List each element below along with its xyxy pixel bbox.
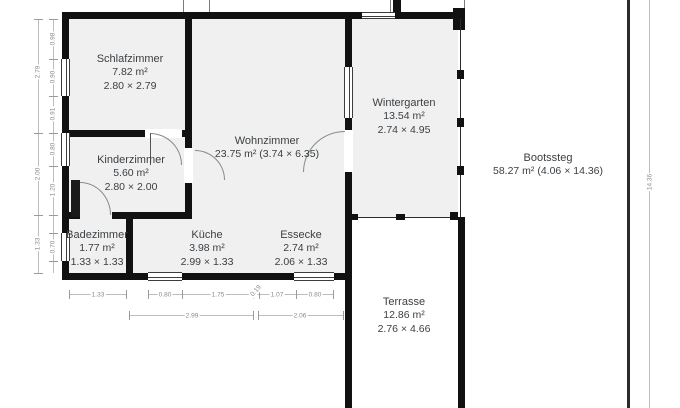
wall-schlaf-wohn bbox=[185, 12, 192, 137]
dimension-label: 1.07 bbox=[270, 291, 285, 298]
dimension-label: 1.33 bbox=[34, 237, 41, 252]
room-label-terrasse: Terrasse 12.86 m² 2.76 × 4.66 bbox=[378, 295, 431, 337]
dimension-tick bbox=[34, 273, 43, 274]
wall-bootssteg-right bbox=[627, 0, 630, 408]
dimension-label: 2.99 bbox=[185, 312, 200, 319]
dimension-tick bbox=[34, 215, 43, 216]
window bbox=[61, 59, 70, 96]
dimension-tick bbox=[129, 311, 130, 320]
room-size: 2.76 × 4.66 bbox=[378, 323, 431, 337]
dimension-tick bbox=[49, 96, 58, 97]
glass-post bbox=[457, 70, 464, 79]
room-size: 2.80 × 2.79 bbox=[97, 80, 164, 94]
dimension-line bbox=[649, 0, 650, 408]
window bbox=[148, 272, 182, 281]
room-label-badezimmer: Badezimmer 1.77 m² 1.33 × 1.33 bbox=[66, 228, 128, 270]
dimension-tick bbox=[34, 19, 43, 20]
dimension-tick bbox=[69, 290, 70, 299]
floor-plan-canvas: Schlafzimmer 7.82 m² 2.80 × 2.79 Kinderz… bbox=[0, 0, 680, 408]
dimension-label: 1.75 bbox=[211, 291, 226, 298]
dimension-label: 0.80 bbox=[49, 142, 56, 157]
dimension-label: 0.98 bbox=[49, 32, 56, 47]
dimension-line bbox=[38, 19, 39, 273]
glass-post bbox=[457, 118, 464, 127]
dimension-tick bbox=[258, 311, 259, 320]
dimension-label: 0.80 bbox=[308, 291, 323, 298]
room-name: Terrasse bbox=[378, 295, 431, 309]
dimension-tick bbox=[49, 59, 58, 60]
room-size: 2.80 × 2.00 bbox=[97, 181, 165, 195]
dimension-label: 0.91 bbox=[49, 107, 56, 122]
room-label-schlafzimmer: Schlafzimmer 7.82 m² 2.80 × 2.79 bbox=[97, 52, 164, 94]
dimension-tick bbox=[49, 133, 58, 134]
dimension-tick bbox=[148, 290, 149, 299]
dimension-tick bbox=[49, 19, 58, 20]
window-wintergarten bbox=[344, 67, 353, 118]
room-size: 2.99 × 1.33 bbox=[181, 256, 234, 270]
room-label-essecke: Essecke 2.74 m² 2.06 × 1.33 bbox=[275, 228, 328, 270]
door-opening bbox=[344, 130, 353, 172]
window bbox=[362, 12, 395, 19]
dimension-label: 0.19 bbox=[248, 283, 263, 299]
room-area: 2.74 m² bbox=[275, 243, 328, 257]
dimension-label: 1.33 bbox=[91, 291, 106, 298]
glass-post bbox=[450, 212, 458, 220]
room-name: Wintergarten bbox=[373, 96, 436, 110]
dimension-tick bbox=[34, 133, 43, 134]
room-label-kueche: Küche 3.98 m² 2.99 × 1.33 bbox=[181, 228, 234, 270]
dimension-label: 2.06 bbox=[293, 312, 308, 319]
room-label-wohnzimmer: Wohnzimmer 23.75 m² (3.74 × 6.35) bbox=[215, 134, 319, 162]
room-name: Wohnzimmer bbox=[215, 134, 319, 148]
room-name: Bootssteg bbox=[493, 151, 603, 165]
dimension-tick bbox=[49, 215, 58, 216]
glass-wall-line bbox=[352, 217, 458, 218]
room-label-bootssteg: Bootssteg 58.27 m² (4.06 × 14.36) bbox=[493, 151, 603, 179]
glass-post bbox=[396, 214, 405, 220]
dimension-tick bbox=[343, 311, 344, 320]
dimension-tick bbox=[49, 166, 58, 167]
room-area: 7.82 m² bbox=[97, 67, 164, 81]
dimension-tick bbox=[333, 290, 334, 299]
dimension-tick bbox=[253, 311, 254, 320]
room-name: Küche bbox=[181, 228, 234, 242]
dimension-label: 14.36 bbox=[646, 173, 653, 191]
wall-corner-post bbox=[453, 8, 465, 30]
glass-post bbox=[457, 166, 464, 175]
room-area: 1.77 m² bbox=[66, 243, 128, 257]
room-name: Essecke bbox=[275, 228, 328, 242]
dimension-label: 0.90 bbox=[49, 70, 56, 85]
wall-terrasse-right bbox=[458, 217, 465, 408]
window bbox=[61, 133, 70, 166]
room-name: Kinderzimmer bbox=[97, 153, 165, 167]
room-name: Schlafzimmer bbox=[97, 52, 164, 66]
room-size: 1.33 × 1.33 bbox=[66, 256, 128, 270]
room-size: 2.74 × 4.95 bbox=[373, 124, 436, 138]
room-area: 3.98 m² bbox=[181, 243, 234, 257]
room-area: 23.75 m² (3.74 × 6.35) bbox=[215, 148, 319, 162]
dimension-label: 2.00 bbox=[34, 167, 41, 182]
room-label-wintergarten: Wintergarten 13.54 m² 2.74 × 4.95 bbox=[373, 96, 436, 138]
door-leaf bbox=[71, 180, 80, 217]
door-opening bbox=[184, 148, 193, 183]
dimension-label: 2.79 bbox=[34, 65, 41, 80]
glass-post bbox=[352, 214, 358, 220]
dimension-tick bbox=[49, 233, 58, 234]
dimension-tick bbox=[182, 290, 183, 299]
room-area: 58.27 m² (4.06 × 14.36) bbox=[493, 165, 603, 179]
dimension-tick bbox=[49, 261, 58, 262]
room-area: 12.86 m² bbox=[378, 310, 431, 324]
room-label-kinderzimmer: Kinderzimmer 5.60 m² 2.80 × 2.00 bbox=[97, 153, 165, 195]
dimension-tick bbox=[296, 290, 297, 299]
dimension-label: 1.20 bbox=[49, 183, 56, 198]
room-area: 13.54 m² bbox=[373, 111, 436, 125]
window bbox=[294, 272, 334, 281]
room-area: 5.60 m² bbox=[97, 168, 165, 182]
dimension-line bbox=[148, 294, 333, 295]
room-size: 2.06 × 1.33 bbox=[275, 256, 328, 270]
dimension-tick bbox=[126, 290, 127, 299]
dimension-label: 0.70 bbox=[49, 240, 56, 255]
wall-top bbox=[62, 12, 458, 19]
dimension-label: 0.80 bbox=[158, 291, 173, 298]
room-name: Badezimmer bbox=[66, 228, 128, 242]
